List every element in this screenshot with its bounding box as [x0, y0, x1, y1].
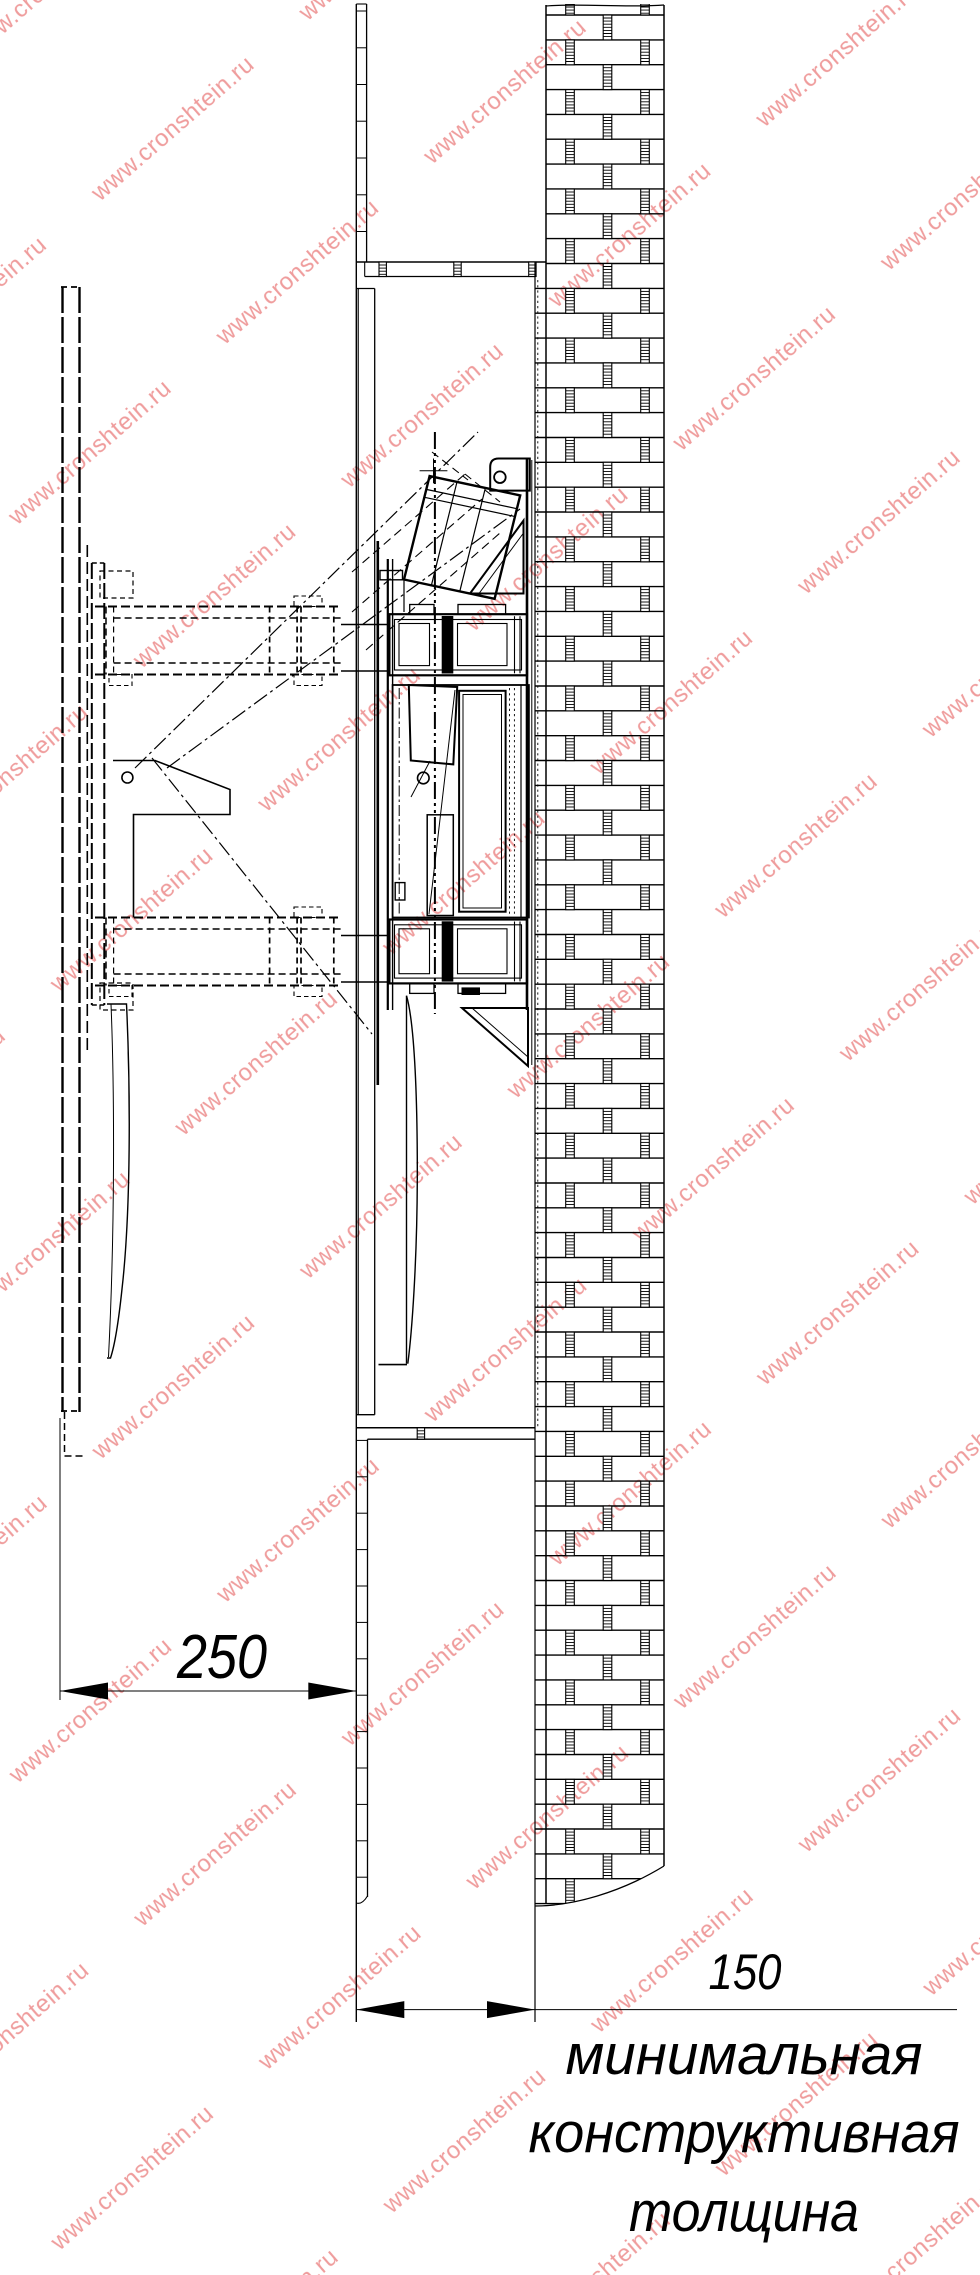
svg-text:150: 150 — [709, 1944, 782, 2000]
svg-text:250: 250 — [176, 1623, 267, 1692]
svg-text:минимальная: минимальная — [566, 2023, 923, 2087]
svg-text:конструктивная: конструктивная — [529, 2101, 960, 2165]
svg-text:толщина: толщина — [629, 2180, 859, 2244]
